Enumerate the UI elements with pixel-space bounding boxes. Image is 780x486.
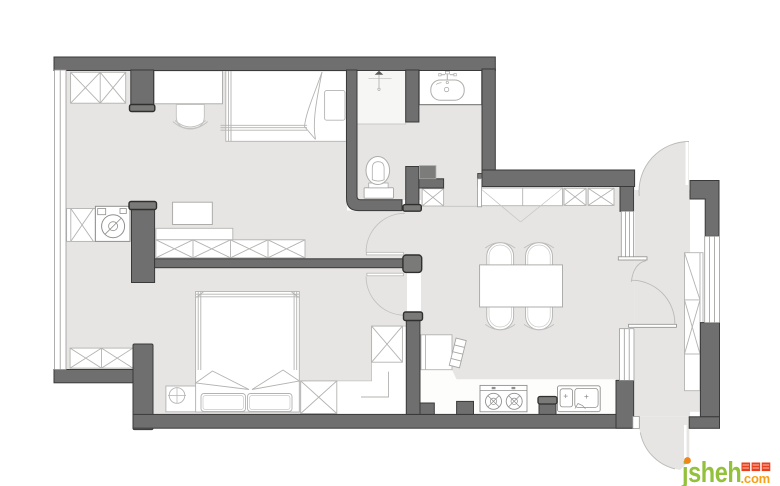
svg-text:.com: .com [741, 471, 771, 486]
